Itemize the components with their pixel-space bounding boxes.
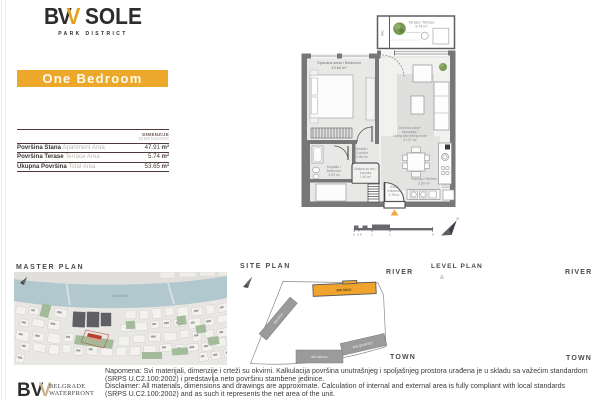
svg-text:Sava River: Sava River xyxy=(112,294,129,298)
svg-text:A/C: A/C xyxy=(381,30,385,36)
svg-text:4.99 m²: 4.99 m² xyxy=(328,173,340,177)
svg-text:21.27 m²: 21.27 m² xyxy=(403,138,417,142)
svg-text:BW SENSA: BW SENSA xyxy=(311,355,328,359)
svg-text:Kuhinja / Kitchen: Kuhinja / Kitchen xyxy=(411,177,437,181)
svg-text:5.74 m²: 5.74 m² xyxy=(415,24,428,28)
svg-text:13.84 m²: 13.84 m² xyxy=(331,65,347,70)
svg-text:0: 0 xyxy=(353,233,355,237)
svg-text:2.60 m²: 2.60 m² xyxy=(418,182,430,186)
svg-text:5: 5 xyxy=(432,233,434,237)
svg-text:1: 1 xyxy=(371,233,373,237)
svg-text:2: 2 xyxy=(389,233,391,237)
svg-text:3.66 m²: 3.66 m² xyxy=(356,155,368,159)
svg-text:N: N xyxy=(457,217,460,221)
svg-text:1.40 m²: 1.40 m² xyxy=(360,175,371,179)
svg-text:BW SOLE: BW SOLE xyxy=(337,288,352,293)
svg-text:1.78 m²: 1.78 m² xyxy=(389,193,400,197)
svg-text:0.5: 0.5 xyxy=(357,233,362,237)
